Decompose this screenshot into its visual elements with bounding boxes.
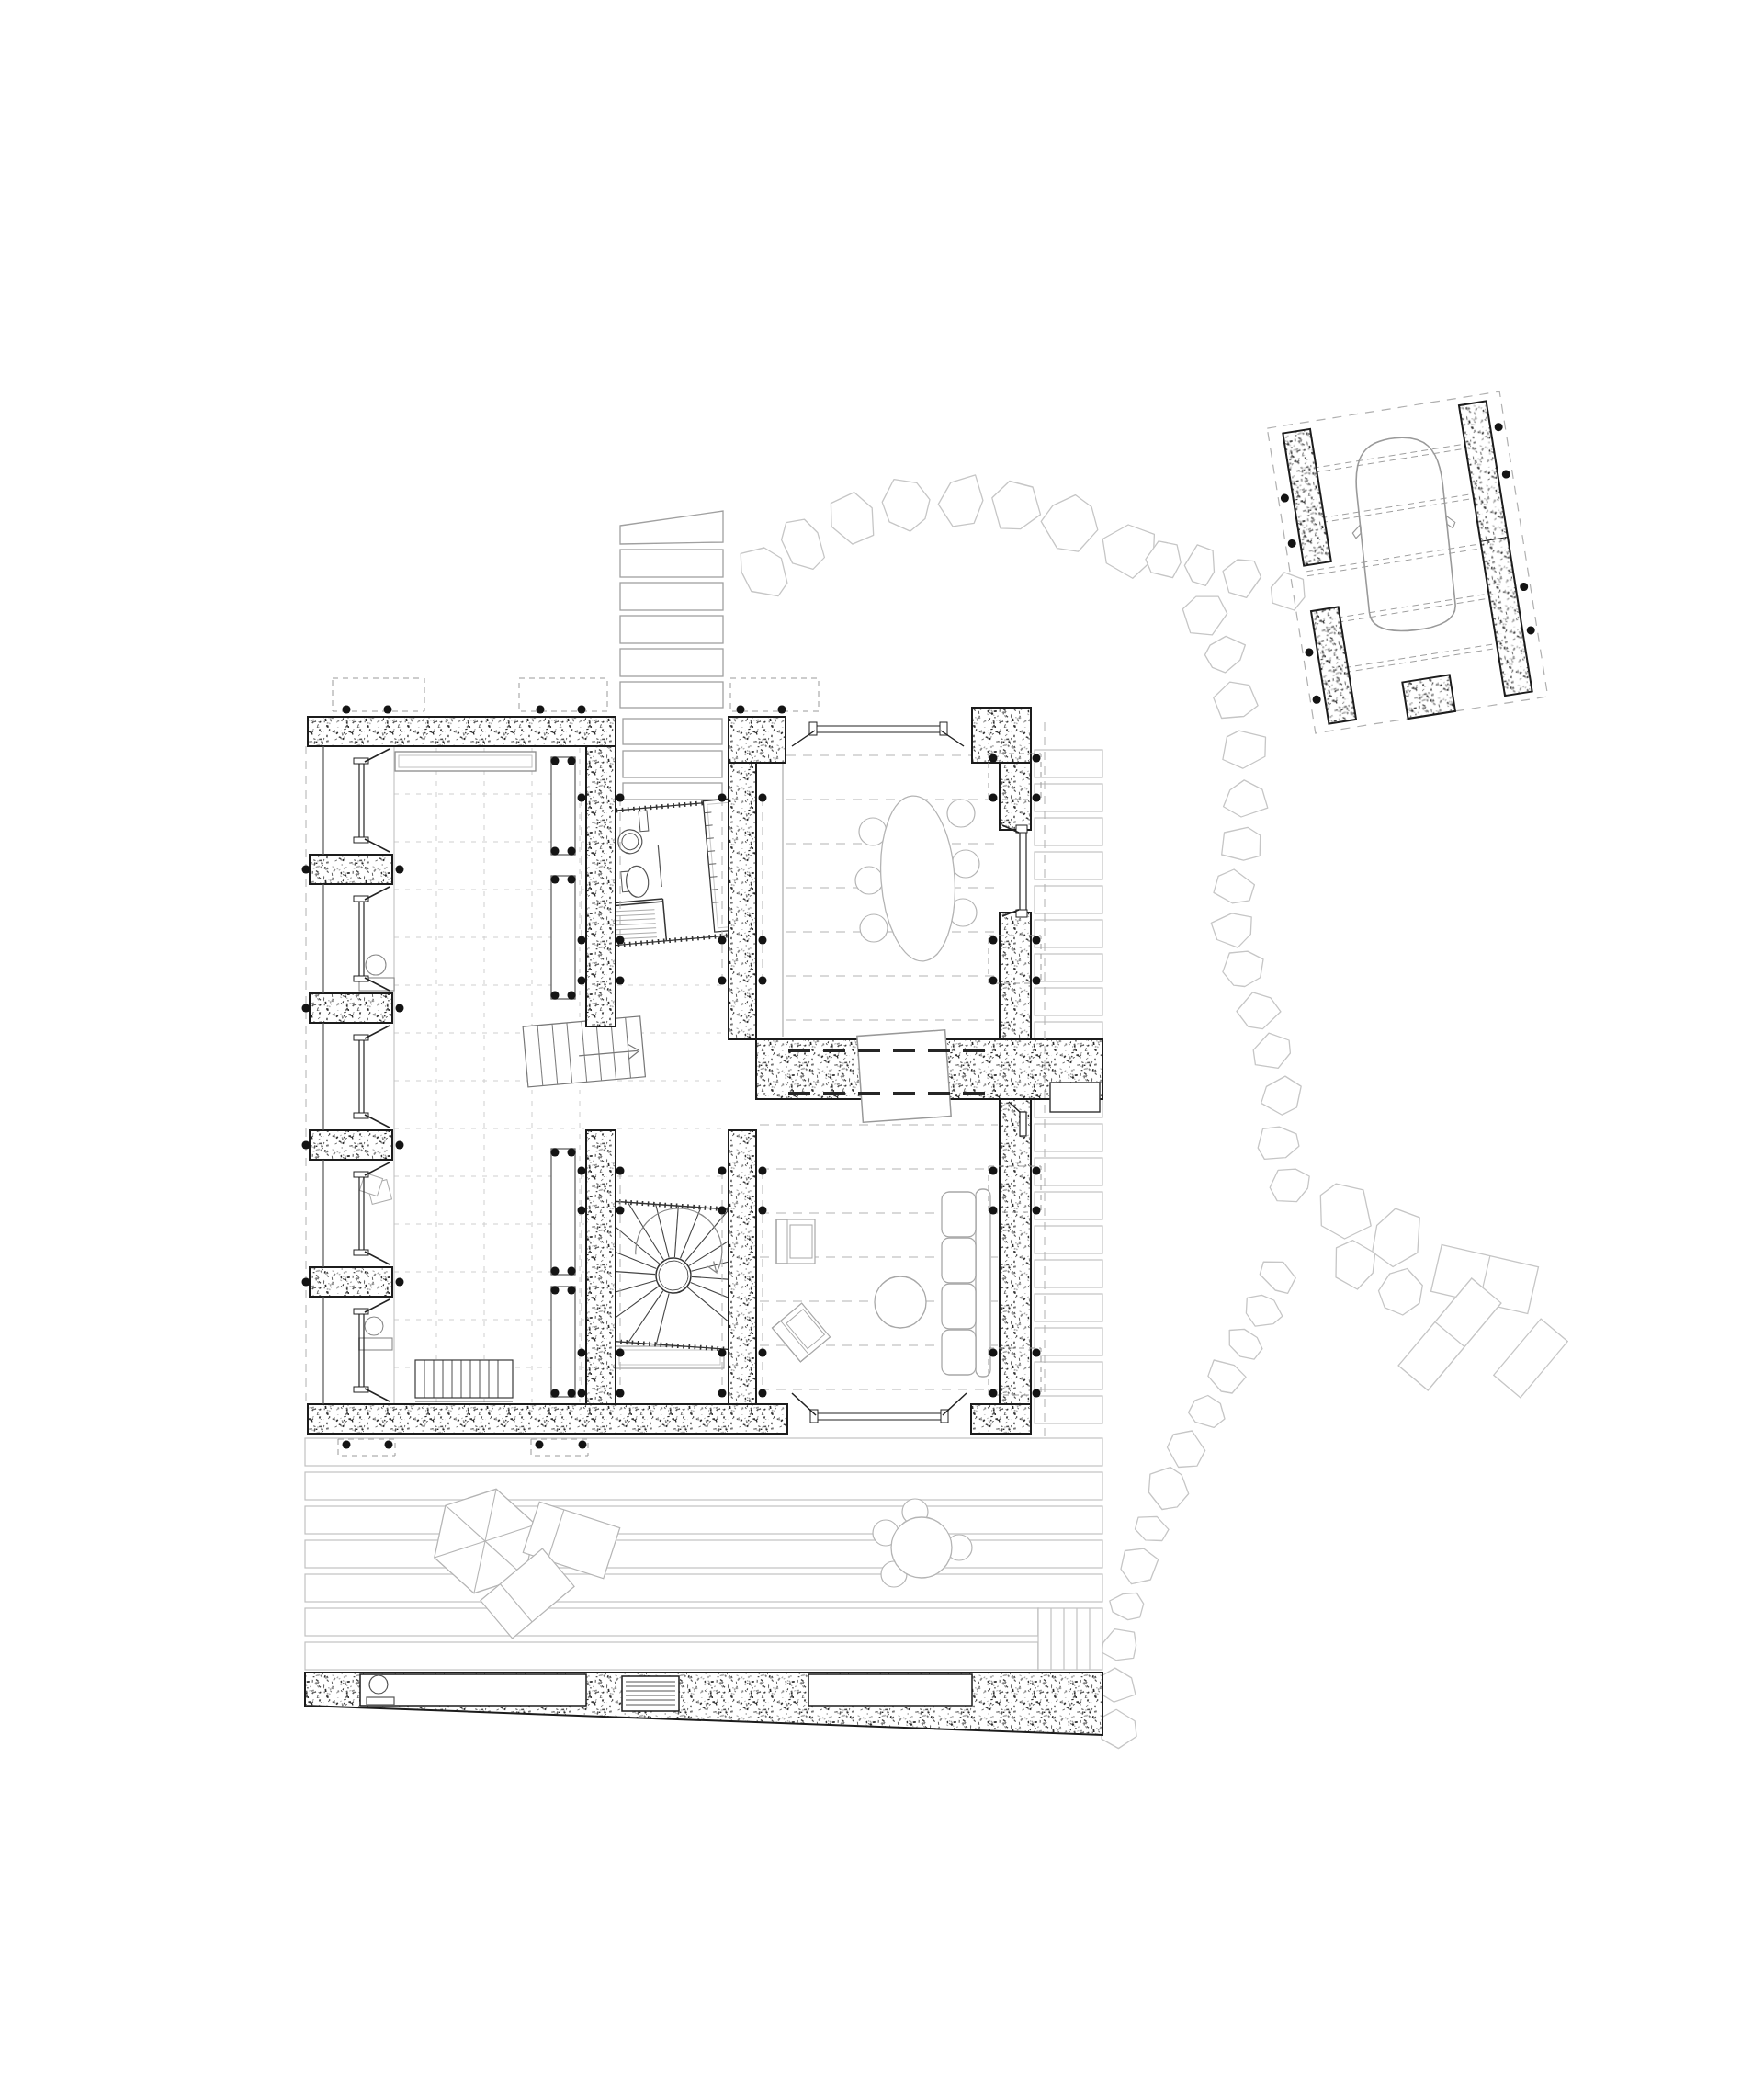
flagstone: [1102, 525, 1154, 578]
deck-plank: [305, 1472, 1102, 1500]
armchair: [776, 1219, 815, 1264]
bay-shutter: [365, 1299, 390, 1312]
dining-chair: [947, 800, 975, 827]
flagstone: [1184, 545, 1214, 586]
flagstone: [1224, 780, 1268, 817]
deck-plank: [305, 1438, 1102, 1466]
column-dot: [1501, 470, 1510, 479]
garden-slabs: [1398, 1245, 1567, 1398]
wardrobe-panel: [551, 1287, 575, 1397]
bay-shutter: [365, 887, 390, 900]
wall-segment: [1000, 763, 1031, 830]
column-dot: [343, 706, 351, 714]
column-dot: [989, 1349, 998, 1357]
flagstone: [938, 475, 983, 527]
flagstone: [1168, 1431, 1205, 1468]
column-dot: [989, 1167, 998, 1175]
column-dot: [343, 1441, 351, 1449]
flagstone: [1320, 1184, 1371, 1239]
armchair-frame: [776, 1219, 815, 1264]
column-dot: [989, 1207, 998, 1215]
column-dot: [737, 706, 745, 714]
flagstone: [1272, 573, 1306, 610]
column-dot: [1033, 977, 1041, 985]
step-tread: [623, 783, 722, 800]
sofa-cushion: [942, 1330, 976, 1375]
bay-fixture-sink: [366, 955, 386, 975]
column-dot: [718, 1349, 727, 1357]
kitchen-counter: [395, 752, 536, 771]
step-tread: [620, 583, 723, 610]
column-dot: [578, 936, 586, 945]
column-dot: [302, 1004, 311, 1013]
wall-segment: [1000, 913, 1031, 1039]
flagstone: [1223, 560, 1261, 597]
bay-shutter: [365, 1389, 390, 1401]
wardrobe-panel: [551, 1149, 575, 1275]
wardrobe-panel: [551, 757, 575, 855]
flagstone: [1148, 1468, 1188, 1510]
wall-segment: [586, 746, 616, 1026]
garage-wall-segment: [1402, 675, 1455, 719]
flagstone: [1214, 869, 1254, 903]
column-dot: [302, 1141, 311, 1150]
flagstone: [1261, 1076, 1302, 1115]
column-dot: [1033, 754, 1041, 763]
column-dot: [778, 706, 786, 714]
flagstone: [1182, 596, 1227, 635]
flagstone: [1189, 1396, 1225, 1428]
flagstone: [1253, 1033, 1290, 1068]
step-tread: [620, 649, 723, 676]
bay-shutter: [365, 839, 390, 852]
column-dot: [396, 866, 404, 874]
deck-plank: [305, 1574, 1102, 1602]
flagstone: [1208, 1360, 1246, 1393]
column-dot: [1033, 1207, 1041, 1215]
flagstone: [1211, 913, 1251, 947]
south-window-shutters: [792, 1393, 816, 1415]
column-dot: [616, 1167, 625, 1175]
column-dot: [536, 1441, 544, 1449]
column-dot: [989, 754, 998, 763]
column-dot: [551, 992, 560, 1000]
wall-segment: [729, 1130, 756, 1434]
wall-segment: [310, 993, 392, 1023]
retaining-wall-inset: [808, 1674, 972, 1706]
wall-segment: [1000, 1099, 1031, 1404]
column-dot: [568, 1149, 576, 1157]
slab-outline: [1494, 1319, 1568, 1398]
dining-table: [876, 793, 960, 963]
bay-fixture-sink: [365, 1317, 383, 1335]
column-dot: [551, 757, 560, 765]
column-dot: [302, 866, 311, 874]
wall-segment: [971, 1404, 1031, 1434]
shelf: [639, 811, 649, 832]
flagstone: [782, 519, 825, 569]
bay-shutter: [365, 749, 390, 762]
garage: [1267, 391, 1547, 733]
column-dot: [718, 794, 727, 802]
column-dot: [718, 977, 727, 985]
column-dot: [385, 1441, 393, 1449]
wall-segment: [729, 763, 756, 1039]
dining-chair: [855, 867, 883, 894]
armchair-frame: [772, 1303, 830, 1362]
armchair: [772, 1303, 830, 1362]
column-dot: [551, 1389, 560, 1398]
dining-window-shutters: [941, 731, 964, 746]
step-tread: [620, 550, 723, 577]
coffee-table: [875, 1276, 926, 1328]
column-dot: [1312, 695, 1321, 704]
flagstone: [1222, 827, 1261, 860]
column-dot: [616, 936, 625, 945]
column-dot: [616, 1349, 625, 1357]
flagstone: [1136, 1516, 1170, 1540]
exterior-steps: [620, 511, 723, 800]
overhang-dash-box: [730, 678, 819, 711]
column-dot: [616, 977, 625, 985]
column-dot: [551, 1149, 560, 1157]
flagstone: [1121, 1548, 1159, 1584]
flagstone: [1270, 1169, 1309, 1201]
bay-shutter: [365, 1252, 390, 1264]
flagstone: [1246, 1295, 1282, 1326]
flagstone: [1205, 636, 1246, 673]
column-dot: [1520, 582, 1529, 591]
column-dot: [384, 706, 392, 714]
flagstone: [741, 548, 787, 596]
column-dot: [578, 1167, 586, 1175]
column-dot: [568, 1287, 576, 1295]
flagstone: [992, 482, 1041, 529]
wall-segment: [308, 717, 616, 746]
garage-group: [1267, 391, 1547, 733]
column-dot: [578, 1207, 586, 1215]
column-dot: [989, 936, 998, 945]
floor-plan-canvas: [0, 0, 1764, 2098]
column-dot: [578, 794, 586, 802]
column-dot: [989, 977, 998, 985]
column-dot: [759, 1167, 767, 1175]
wall-segment: [308, 1404, 787, 1434]
bathroom: [594, 798, 750, 946]
flagstone: [1101, 1709, 1136, 1748]
dining-window-shutters: [792, 731, 815, 746]
column-dot: [568, 757, 576, 765]
column-dot: [759, 1389, 767, 1398]
column-dot: [1494, 423, 1503, 432]
column-dot: [578, 1349, 586, 1357]
step-tread: [620, 616, 723, 643]
flagstone: [1214, 682, 1258, 718]
flagstone: [831, 493, 873, 544]
column-dot: [1280, 493, 1289, 503]
column-dot: [759, 1207, 767, 1215]
column-dot: [1305, 648, 1314, 657]
wall-segment: [972, 708, 1031, 763]
door-leaf: [1020, 1112, 1026, 1136]
sofa-cushion: [942, 1238, 976, 1283]
stone-slab: [1494, 1319, 1568, 1398]
column-dot: [568, 847, 576, 856]
bay-shutter: [365, 1162, 390, 1175]
column-dot: [1287, 539, 1296, 548]
column-dot: [616, 1389, 625, 1398]
sofa-cushion: [942, 1284, 976, 1329]
column-dot: [718, 1207, 727, 1215]
step-tread: [620, 511, 723, 544]
deck-plank: [305, 1642, 1038, 1670]
column-dot: [1526, 626, 1535, 635]
straight-staircase: [523, 1016, 645, 1087]
flagstone: [1229, 1329, 1262, 1359]
wall-segment: [310, 1267, 392, 1297]
column-dot: [718, 1167, 727, 1175]
column-dot: [616, 1207, 625, 1215]
overhang-dash-box: [519, 678, 607, 711]
column-dot: [396, 1004, 404, 1013]
flagstone: [1379, 1269, 1423, 1316]
deck-plank: [305, 1608, 1038, 1636]
wall-segment: [310, 1130, 392, 1160]
entry-mat-outline: [857, 1030, 951, 1122]
column-dot: [568, 876, 576, 884]
sofa-cushion: [942, 1192, 976, 1237]
column-dot: [616, 794, 625, 802]
flagstone: [1102, 1629, 1136, 1661]
column-dot: [551, 1267, 560, 1276]
deck-plank: [305, 1506, 1102, 1534]
column-dot: [568, 1389, 576, 1398]
column-dot: [718, 936, 727, 945]
column-dot: [759, 977, 767, 985]
column-dot: [1033, 1167, 1041, 1175]
column-dot: [578, 706, 586, 714]
flagstone: [882, 480, 930, 531]
column-dot: [578, 1389, 586, 1398]
column-dot: [1033, 1389, 1041, 1398]
dining-chair: [860, 914, 888, 942]
bay-shutter: [365, 1026, 390, 1038]
column-dot: [1033, 1349, 1041, 1357]
wardrobe-panel: [551, 876, 575, 999]
deck-steps: [1038, 1608, 1102, 1670]
dining-chair: [952, 850, 979, 878]
bay-shutter: [365, 1115, 390, 1128]
column-dot: [302, 1278, 311, 1287]
column-dot: [989, 794, 998, 802]
column-dot: [568, 992, 576, 1000]
column-dot: [989, 1389, 998, 1398]
flagstone: [1237, 992, 1281, 1029]
entry-mat: [857, 1030, 951, 1122]
column-dot: [759, 794, 767, 802]
column-dot: [551, 876, 560, 884]
wall-segment: [310, 855, 392, 884]
column-dot: [568, 1267, 576, 1276]
step-tread: [620, 682, 723, 708]
column-dot: [759, 1349, 767, 1357]
flagstone: [1041, 495, 1098, 552]
flagstone: [1223, 951, 1263, 986]
sofa-back: [976, 1189, 990, 1377]
wall-segment: [586, 1130, 616, 1434]
flagstone: [1373, 1208, 1420, 1266]
deck-plank: [305, 1540, 1102, 1568]
column-dot: [396, 1141, 404, 1150]
entry-outside-step: [1050, 1083, 1100, 1112]
step-tread: [623, 751, 722, 777]
column-dot: [718, 1389, 727, 1398]
column-dot: [551, 1287, 560, 1295]
column-dot: [1033, 794, 1041, 802]
column-dot: [551, 847, 560, 856]
deck-table: [891, 1517, 952, 1578]
step-tread: [623, 719, 722, 744]
column-dot: [579, 1441, 587, 1449]
spiral-room: [598, 1201, 749, 1350]
south-window-shutters: [943, 1393, 967, 1415]
wall-segment: [729, 717, 786, 763]
flagstone: [1110, 1593, 1144, 1619]
flagstone: [1336, 1241, 1375, 1289]
bathroom-room: [594, 798, 750, 946]
flagstone: [1223, 731, 1266, 768]
spiral-staircase: [598, 1201, 749, 1350]
column-dot: [578, 977, 586, 985]
column-dot: [759, 936, 767, 945]
column-dot: [537, 706, 545, 714]
flagstone: [1260, 1262, 1295, 1293]
flagstone: [1258, 1127, 1299, 1159]
column-dot: [396, 1278, 404, 1287]
column-dot: [1033, 936, 1041, 945]
